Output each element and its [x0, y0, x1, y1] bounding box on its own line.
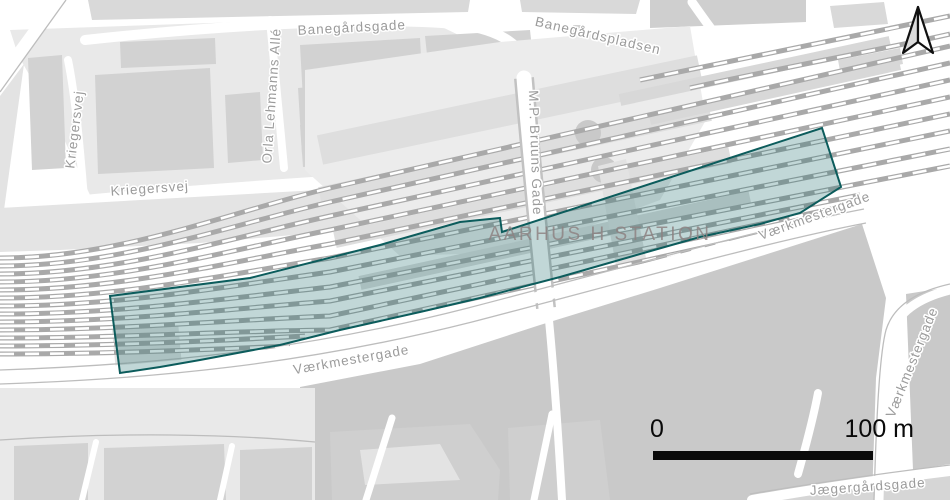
building [14, 443, 88, 500]
building [240, 447, 312, 500]
scale-bar-max-label: 100 m [845, 415, 914, 443]
map-screenshot: Banegårdsgade Banegårdspladsen Kriegersv… [0, 0, 950, 500]
building [225, 92, 263, 163]
building [28, 55, 66, 170]
building [120, 38, 216, 68]
building [95, 68, 214, 174]
map-canvas[interactable]: Banegårdsgade Banegårdspladsen Kriegersv… [0, 0, 950, 500]
station-name-label: AARHUS H STATION [489, 224, 712, 245]
building [520, 0, 640, 14]
building [104, 444, 226, 500]
scale-bar-zero-label: 0 [650, 415, 664, 443]
scale-bar-line [653, 451, 873, 460]
building [830, 2, 888, 28]
